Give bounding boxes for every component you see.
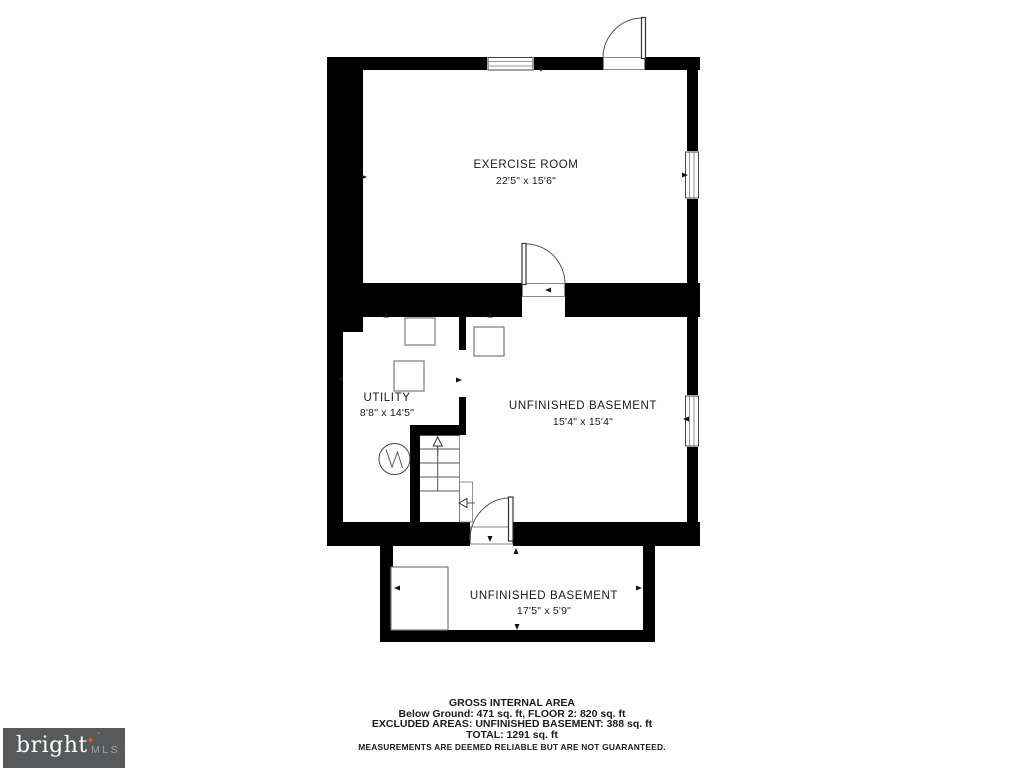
entry-door-top xyxy=(603,18,646,71)
area-summary-total: TOTAL: 1291 sq. ft xyxy=(0,730,1024,741)
stair-wall-top xyxy=(410,425,466,435)
windows xyxy=(487,57,699,447)
walls xyxy=(327,57,700,642)
stairs-up-arrow xyxy=(433,437,442,456)
wall-left-thin xyxy=(327,332,343,546)
water-heater-symbol xyxy=(379,444,410,475)
room-label-exercise: EXERCISE ROOM xyxy=(474,159,579,171)
area-summary-disclaimer: MEASUREMENTS ARE DEEMED RELIABLE BUT ARE… xyxy=(0,742,1024,753)
equipment-box xyxy=(394,361,424,391)
lower-room-wall-bottom xyxy=(380,630,655,642)
lower-room-wall-right xyxy=(643,546,655,642)
equipment-box xyxy=(405,318,435,345)
room-dims-exercise: 22'5" x 15'6" xyxy=(496,175,556,187)
floor-plan-page: EXERCISE ROOM 22'5" x 15'6" UTILITY 8'8"… xyxy=(0,0,1024,768)
window-basement-right xyxy=(686,395,699,447)
doors xyxy=(470,18,646,547)
logo-brand-text: bright xyxy=(16,733,88,758)
area-summary: GROSS INTERNAL AREA Below Ground: 471 sq… xyxy=(0,698,1024,753)
equipment-boxes xyxy=(391,318,504,630)
basement-door-bottom xyxy=(470,497,513,546)
floor-plan-drawing: EXERCISE ROOM 22'5" x 15'6" UTILITY 8'8"… xyxy=(0,0,1024,768)
stair-wall-left xyxy=(410,425,420,522)
room-dims-basement-mid: 15'4" x 15'4" xyxy=(553,416,613,428)
room-label-utility: UTILITY xyxy=(363,392,410,404)
storage-box xyxy=(391,567,448,630)
stairs xyxy=(420,435,475,522)
logo-trademark: ™ xyxy=(96,732,101,738)
equipment-box xyxy=(474,327,504,356)
area-summary-title: GROSS INTERNAL AREA xyxy=(0,698,1024,709)
room-dims-basement-low: 17'5" x 5'9" xyxy=(517,605,571,617)
window-top xyxy=(487,57,534,70)
exercise-room-door xyxy=(522,244,565,318)
room-label-basement-low: UNFINISHED BASEMENT xyxy=(470,590,618,602)
room-dims-utility: 8'8" x 14'5" xyxy=(360,407,414,419)
wall-stub-upper xyxy=(459,317,466,350)
bright-mls-logo: bright ✦ ™ MLS xyxy=(3,728,125,768)
room-label-basement-mid: UNFINISHED BASEMENT xyxy=(509,400,657,412)
logo-suffix-text: MLS xyxy=(91,744,120,756)
wall-middle xyxy=(327,283,700,317)
